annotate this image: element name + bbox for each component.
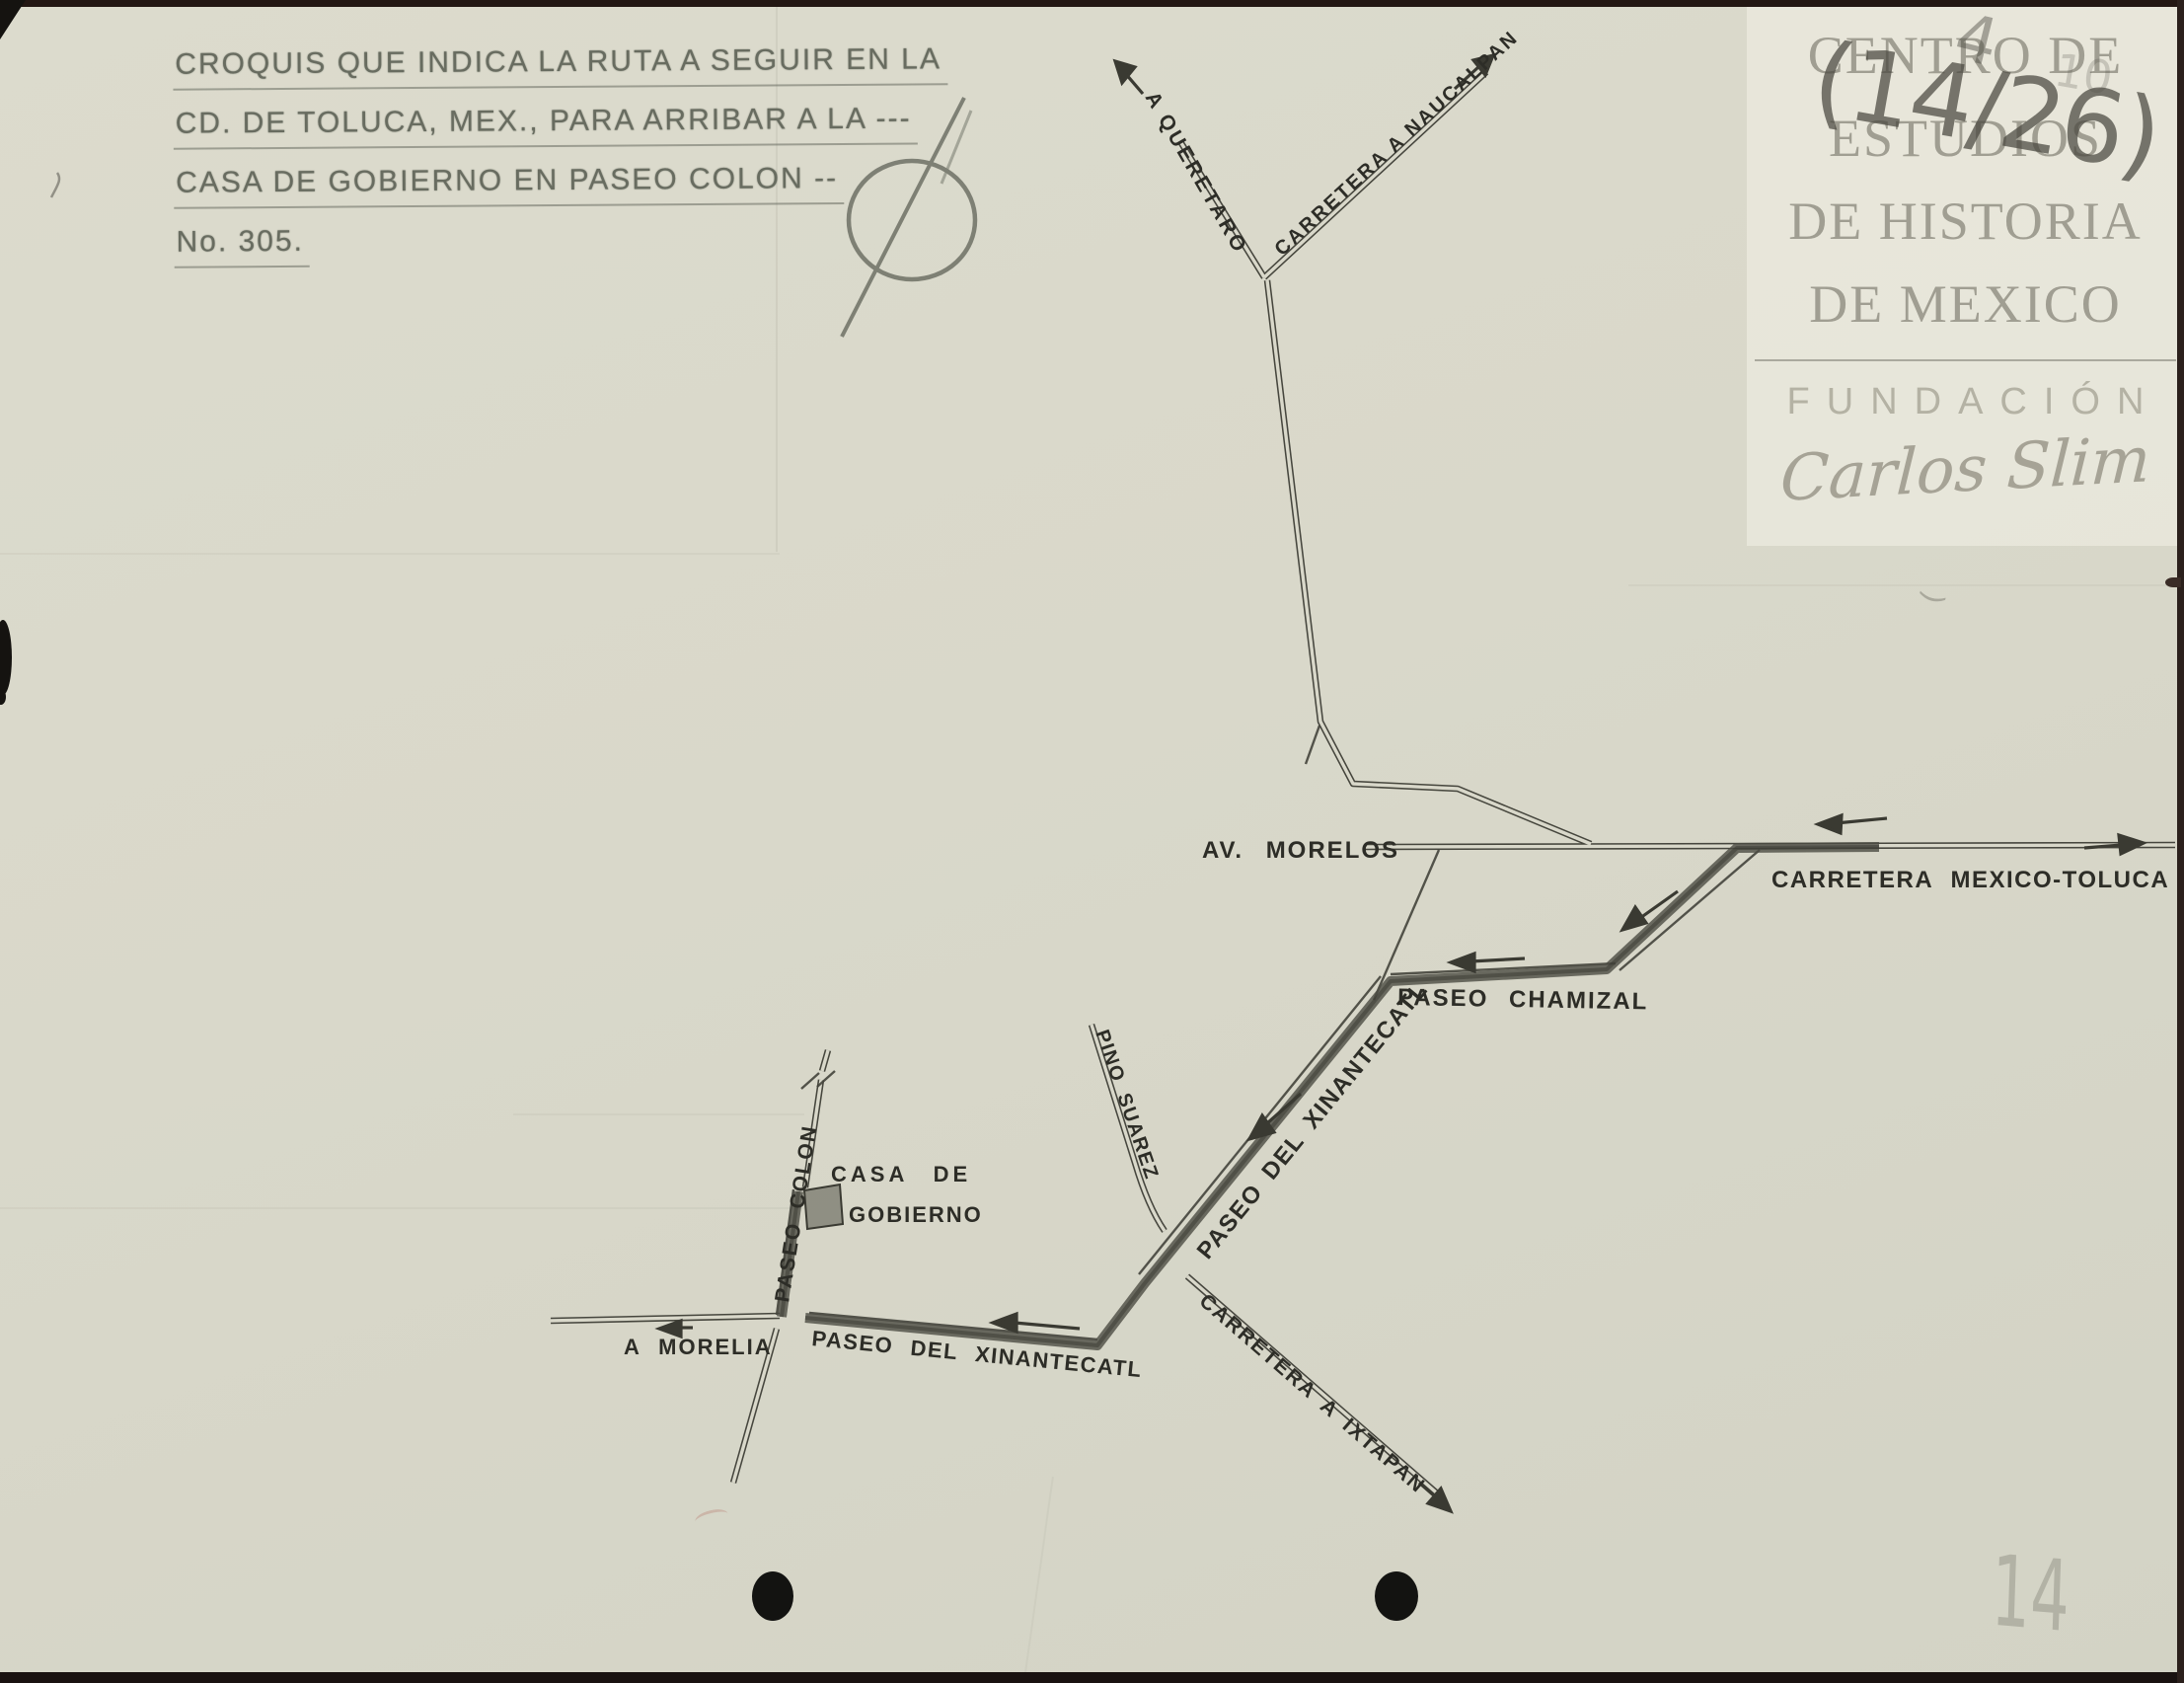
arrow-route-west-xinantecatl [993, 1314, 1080, 1332]
label-a-morelia: A MORELIA [624, 1335, 773, 1359]
pencil-squiggle [51, 173, 59, 197]
label-carretera-ixtapan: CARRETERA A IXTAPAN [1195, 1289, 1430, 1497]
fork-stub [1306, 726, 1319, 764]
label-paseo-xinantecatl-diagonal: PASEO DEL XINANTECATL [1192, 976, 1434, 1264]
scan-corner-mark [0, 0, 26, 39]
title-line-4: No. 305. [174, 225, 310, 268]
scan-edge-top [0, 0, 2184, 7]
arrow-route-west-1 [1818, 815, 1887, 833]
label-paseo-chamizal: PASEO CHAMIZAL [1397, 984, 1649, 1015]
scanned-document-page: CENTRO DE ESTUDIOS DE HISTORIA DE MEXICO… [0, 0, 2184, 1683]
arrow-to-queretaro [1115, 61, 1143, 94]
title-line-2: CD. DE TOLUCA, MEX., PARA ARRIBAR A LA -… [174, 102, 918, 149]
title-block: CROQUIS QUE INDICA LA RUTA A SEGUIR EN L… [173, 42, 948, 284]
road-break-tick [817, 1071, 835, 1087]
label-pino-suarez: PINO SUAREZ [1091, 1027, 1163, 1183]
punch-hole-right [1375, 1571, 1418, 1621]
label-a-queretaro: A QUERETARO [1141, 88, 1252, 258]
scan-edge-right [2177, 0, 2184, 1683]
scan-edge-nick [2165, 577, 2181, 587]
title-line-3: CASA DE GOBIERNO EN PASEO COLON -- [174, 162, 844, 209]
label-carretera-naucalpan: CARRETERA A NAUCALPAN [1271, 27, 1524, 261]
road-north-access [1267, 280, 1591, 844]
label-carretera-mexico-toluca: CARRETERA MEXICO-TOLUCA [1771, 867, 2169, 893]
label-casa-de: CASA DE [831, 1162, 971, 1186]
road-break-tick [801, 1073, 819, 1089]
pencil-annotation-faint: 10 [2051, 42, 2117, 105]
pencil-annotation-bottom: 14 [1990, 1533, 2071, 1654]
road-curb-lines [777, 726, 1760, 1339]
label-av-morelos: AV. MORELOS [1202, 837, 1399, 864]
label-gobierno: GOBIERNO [849, 1202, 983, 1227]
scan-edge-bottom [0, 1672, 2184, 1683]
punch-hole-left [752, 1571, 793, 1621]
title-line-1: CROQUIS QUE INDICA LA RUTA A SEGUIR EN L… [173, 42, 947, 90]
